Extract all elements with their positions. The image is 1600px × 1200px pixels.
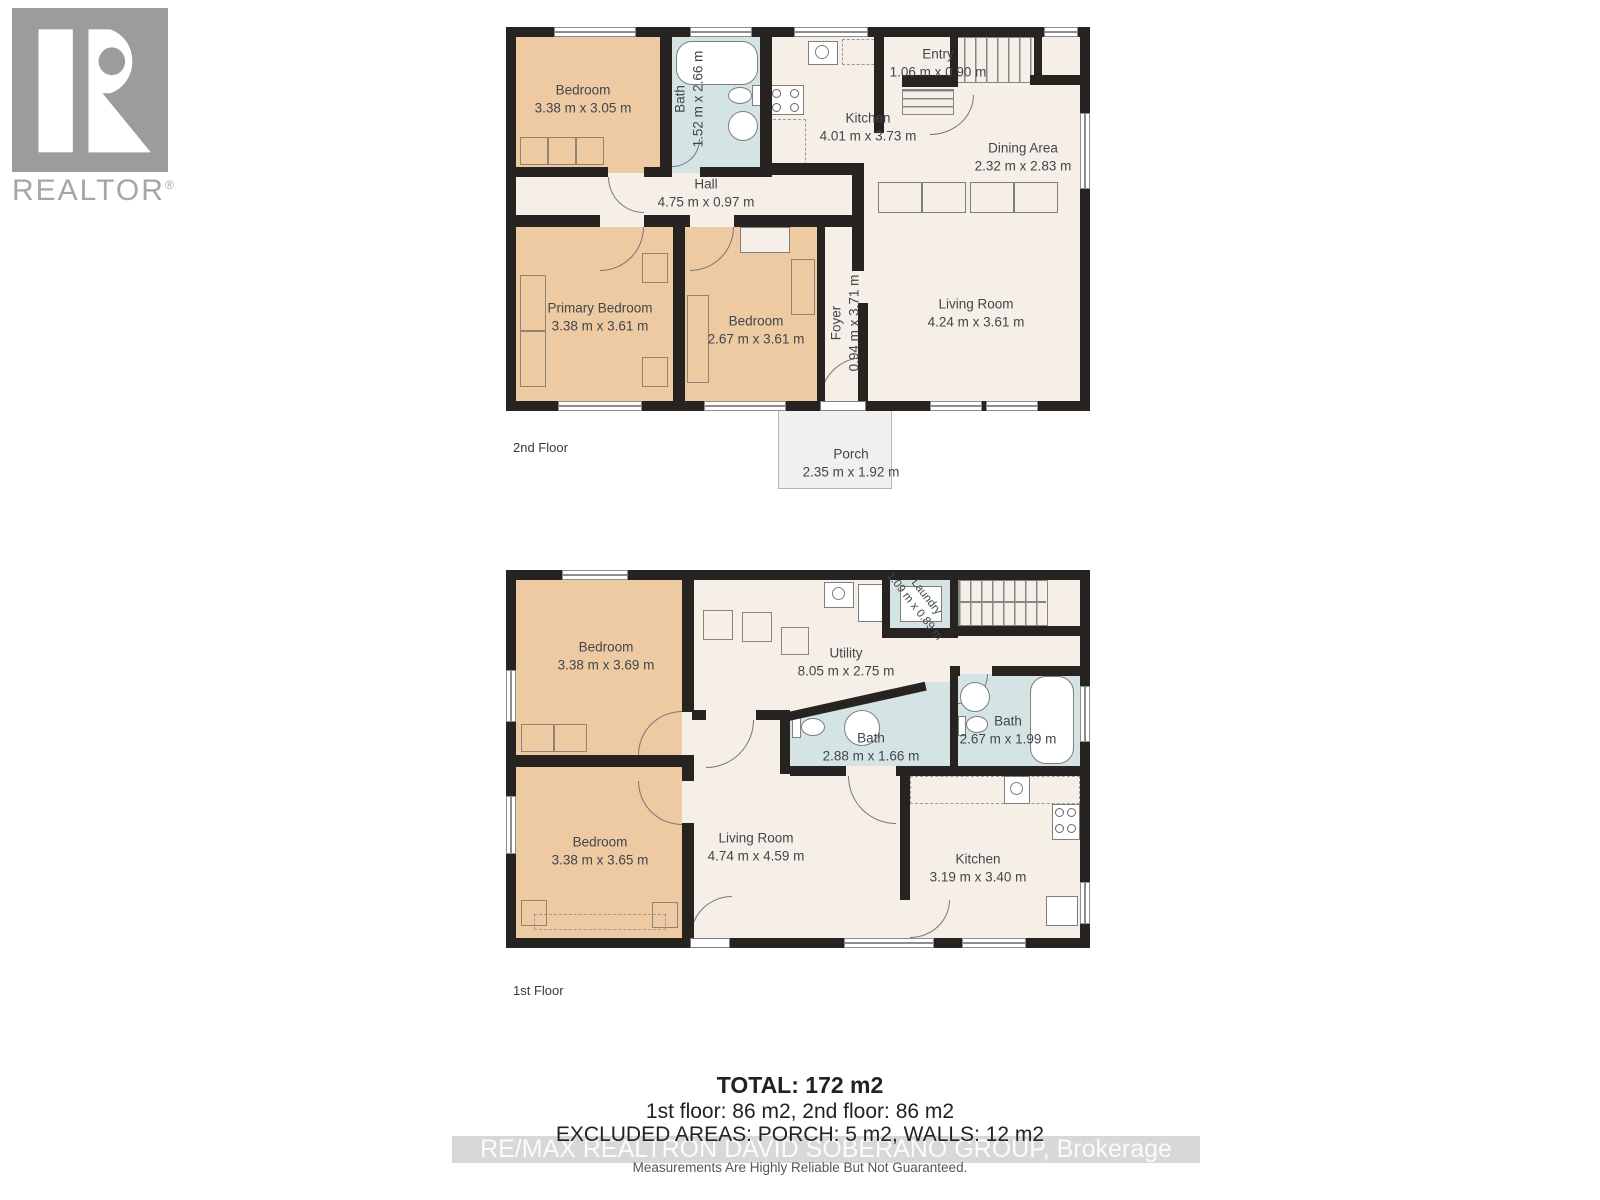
- wall: [958, 626, 1080, 636]
- burner-icon: [1055, 808, 1064, 817]
- room-label-dining: Dining Area 2.32 m x 2.83 m: [975, 139, 1072, 174]
- burner-icon: [790, 89, 799, 98]
- room-name: Entry: [890, 45, 987, 63]
- wall: [790, 766, 846, 776]
- closet: [521, 724, 554, 752]
- room-dims: 3.19 m x 3.40 m: [930, 868, 1027, 886]
- room-name: Bath: [671, 51, 689, 148]
- furniture: [521, 900, 547, 926]
- utility-sink-basin-icon: [832, 587, 845, 600]
- realtor-logo: [12, 8, 168, 172]
- room-label-bedroom-2: Bedroom 3.38 m x 3.65 m: [552, 833, 649, 868]
- wall: [682, 767, 694, 781]
- room-dims: 2.35 m x 1.92 m: [803, 463, 900, 481]
- window: [554, 27, 636, 37]
- room-name: Living Room: [928, 295, 1025, 313]
- wall: [692, 710, 706, 720]
- door-threshold: [690, 938, 730, 948]
- wall: [950, 666, 960, 676]
- room-dims: 2.32 m x 2.83 m: [975, 157, 1072, 175]
- wall: [516, 755, 694, 767]
- window: [962, 938, 1026, 948]
- room-name: Kitchen: [820, 109, 917, 127]
- summary-floors: 1st floor: 86 m2, 2nd floor: 86 m2: [400, 1100, 1200, 1124]
- wall: [516, 215, 600, 227]
- room-dims: 4.01 m x 3.73 m: [820, 127, 917, 145]
- door-threshold: [820, 401, 866, 411]
- wall: [1080, 27, 1090, 411]
- furniture: [642, 253, 668, 283]
- room-name: Bedroom: [708, 312, 805, 330]
- cabinet: [858, 584, 884, 622]
- cabinet: [878, 182, 922, 213]
- wall: [874, 37, 884, 85]
- room-dims: 2.67 m x 3.61 m: [708, 330, 805, 348]
- room-dims: 4.74 m x 4.59 m: [708, 847, 805, 865]
- window: [794, 27, 868, 37]
- window: [1080, 113, 1090, 189]
- window: [704, 401, 786, 411]
- window: [562, 570, 628, 580]
- wall: [817, 227, 825, 401]
- furniture: [687, 295, 709, 383]
- counter-outline: [910, 776, 1080, 804]
- wall: [760, 37, 772, 177]
- cabinet: [1014, 182, 1058, 213]
- wall: [992, 666, 1080, 676]
- wall: [673, 227, 685, 401]
- wall: [506, 570, 516, 948]
- wall: [734, 215, 858, 227]
- wall: [660, 37, 672, 167]
- burner-icon: [772, 89, 781, 98]
- room-label-entry: Entry 1.06 m x 0.90 m: [890, 45, 987, 80]
- cabinet: [970, 182, 1014, 213]
- floor-plan-page: { "logo": { "title": "REALTOR", "reg": "…: [0, 0, 1600, 1200]
- room-label-utility: Utility 8.05 m x 2.75 m: [798, 644, 895, 679]
- wall: [772, 163, 864, 175]
- room-label-kitchen: Kitchen 4.01 m x 3.73 m: [820, 109, 917, 144]
- room-dims: 2.67 m x 1.99 m: [960, 730, 1057, 748]
- kitchen-sink-basin-icon: [1010, 782, 1023, 795]
- room-name: Living Room: [708, 829, 805, 847]
- room-label-bath-1: Bath 2.88 m x 1.66 m: [823, 729, 920, 764]
- room-name: Hall: [658, 175, 755, 193]
- furniture: [642, 357, 668, 387]
- furniture: [703, 610, 733, 640]
- room-name: Bath: [823, 729, 920, 747]
- burner-icon: [772, 103, 781, 112]
- wall: [682, 823, 694, 938]
- wall: [682, 580, 694, 712]
- room-dims: 4.75 m x 0.97 m: [658, 193, 755, 211]
- window: [558, 401, 642, 411]
- furniture-outline: [534, 914, 666, 930]
- floor-label-1st: 1st Floor: [513, 983, 564, 998]
- staircase: [958, 580, 1048, 626]
- room-label-primary: Primary Bedroom 3.38 m x 3.61 m: [547, 299, 652, 334]
- furniture: [520, 137, 548, 165]
- room-dims: 3.38 m x 3.05 m: [535, 99, 632, 117]
- sink-icon: [728, 111, 758, 141]
- room-name: Porch: [803, 445, 900, 463]
- room-dims: 8.05 m x 2.75 m: [798, 662, 895, 680]
- cabinet: [922, 182, 966, 213]
- room-name: Bedroom: [535, 81, 632, 99]
- room-label-living: Living Room 4.24 m x 3.61 m: [928, 295, 1025, 330]
- room-label-bedroom: Bedroom 3.38 m x 3.69 m: [558, 638, 655, 673]
- sink-icon: [960, 682, 990, 712]
- summary-total: TOTAL: 172 m2: [400, 1072, 1200, 1099]
- wall: [506, 27, 516, 411]
- window: [1080, 686, 1090, 742]
- room-label-bedroom: Bedroom 3.38 m x 3.05 m: [535, 81, 632, 116]
- toilet-icon: [728, 87, 752, 104]
- wall: [644, 215, 690, 227]
- wall: [900, 776, 910, 900]
- wall: [516, 167, 608, 177]
- floorplan-2nd-floor: Bedroom 3.38 m x 3.05 m Bath 1.52 m x 2.…: [506, 27, 1090, 411]
- room-name: Foyer: [827, 275, 845, 372]
- realtor-r-icon: [12, 8, 168, 172]
- burner-icon: [1067, 808, 1076, 817]
- room-name: Bedroom: [552, 833, 649, 851]
- counter-outline: [768, 119, 806, 165]
- wall: [1030, 75, 1080, 85]
- room-name: Bedroom: [558, 638, 655, 656]
- summary-excluded: EXCLUDED AREAS: PORCH: 5 m2, WALLS: 12 m…: [400, 1123, 1200, 1147]
- window: [1044, 27, 1078, 37]
- room-dims: 1.52 m x 2.66 m: [689, 51, 707, 148]
- realtor-word: REALTOR: [12, 174, 165, 207]
- window: [506, 796, 516, 854]
- window: [1080, 882, 1090, 924]
- wall: [852, 163, 864, 271]
- wall: [950, 674, 958, 766]
- room-dims: 3.38 m x 3.61 m: [547, 317, 652, 335]
- room-label-bath-2: Bath 2.67 m x 1.99 m: [960, 712, 1057, 747]
- furniture: [791, 259, 815, 315]
- closet: [554, 724, 587, 752]
- room-label-foyer: Foyer 0.94 m x 3.71 m: [827, 275, 862, 372]
- furniture: [576, 137, 604, 165]
- room-name: Primary Bedroom: [547, 299, 652, 317]
- room-dims: 4.24 m x 3.61 m: [928, 313, 1025, 331]
- room-dims: 3.38 m x 3.65 m: [552, 851, 649, 869]
- room-dims: 1.06 m x 0.90 m: [890, 63, 987, 81]
- wardrobe: [520, 275, 546, 331]
- kitchen-sink-basin-icon: [815, 45, 829, 59]
- burner-icon: [790, 103, 799, 112]
- room-name: Utility: [798, 644, 895, 662]
- toilet-icon: [801, 718, 825, 736]
- room-dims: 3.38 m x 3.69 m: [558, 656, 655, 674]
- wardrobe: [520, 331, 546, 387]
- counter: [1046, 896, 1078, 926]
- room-name: Dining Area: [975, 139, 1072, 157]
- room-label-porch: Porch 2.35 m x 1.92 m: [803, 445, 900, 480]
- floorplan-1st-floor: Bedroom 3.38 m x 3.69 m Utility 8.05 m x…: [506, 570, 1090, 948]
- burner-icon: [1055, 824, 1064, 833]
- furniture: [548, 137, 576, 165]
- room-label-bedroom-2: Bedroom 2.67 m x 3.61 m: [708, 312, 805, 347]
- wall: [756, 710, 790, 720]
- registered-mark-icon: ®: [165, 178, 176, 192]
- room-name: Kitchen: [930, 850, 1027, 868]
- wall: [896, 766, 1080, 776]
- window: [690, 27, 752, 37]
- furniture: [742, 612, 772, 642]
- window: [930, 401, 982, 411]
- room-name: Bath: [960, 712, 1057, 730]
- stair-rail: [960, 601, 1046, 603]
- room-label-bath: Bath 1.52 m x 2.66 m: [671, 51, 706, 148]
- room-label-hall: Hall 4.75 m x 0.97 m: [658, 175, 755, 210]
- room-dims: 2.88 m x 1.66 m: [823, 747, 920, 765]
- room-label-kitchen: Kitchen 3.19 m x 3.40 m: [930, 850, 1027, 885]
- window: [506, 670, 516, 722]
- closet: [740, 227, 790, 253]
- window: [986, 401, 1038, 411]
- window: [844, 938, 934, 948]
- burner-icon: [1067, 824, 1076, 833]
- realtor-wordmark: REALTOR®: [12, 174, 212, 208]
- floor-label-2nd: 2nd Floor: [513, 440, 568, 455]
- room-dims: 0.94 m x 3.71 m: [845, 275, 863, 372]
- summary-disclaimer: Measurements Are Highly Reliable But Not…: [400, 1160, 1200, 1175]
- furniture: [652, 902, 678, 928]
- room-label-living: Living Room 4.74 m x 4.59 m: [708, 829, 805, 864]
